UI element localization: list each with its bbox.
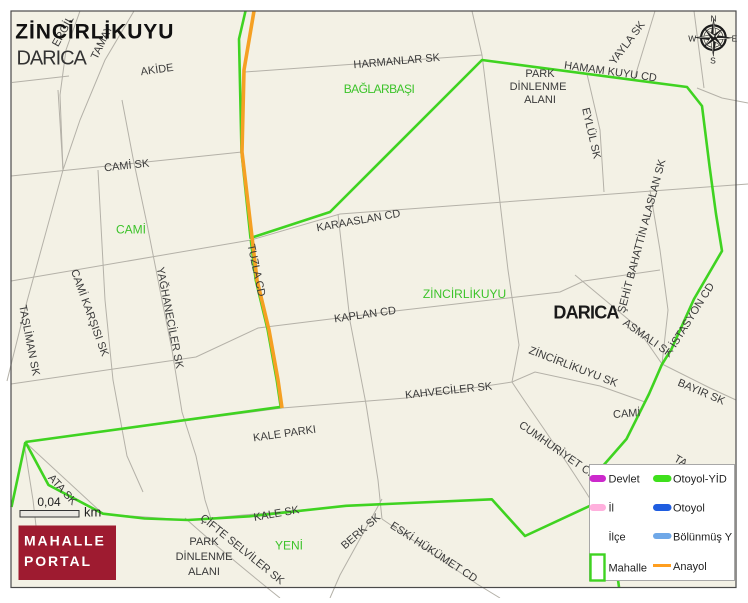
svg-text:Otoyol-YİD: Otoyol-YİD	[673, 473, 727, 486]
svg-text:DİNLENME: DİNLENME	[510, 80, 567, 93]
svg-text:E: E	[732, 34, 738, 44]
svg-text:ZİNCİRLİKUYU: ZİNCİRLİKUYU	[423, 287, 506, 301]
svg-text:PORTAL: PORTAL	[24, 553, 92, 569]
svg-text:DARICA: DARICA	[17, 48, 88, 70]
svg-text:ZİNCİRLİKUYU: ZİNCİRLİKUYU	[15, 20, 174, 43]
svg-text:ALANI: ALANI	[524, 94, 556, 106]
svg-text:MAHALLE: MAHALLE	[24, 533, 106, 549]
svg-text:CAMİ: CAMİ	[613, 406, 641, 421]
svg-text:DİNLENME: DİNLENME	[176, 550, 233, 563]
svg-text:Otoyol: Otoyol	[673, 503, 705, 515]
svg-text:BAĞLARBAŞI: BAĞLARBAŞI	[344, 81, 415, 96]
svg-text:Devlet: Devlet	[609, 474, 640, 486]
svg-text:W: W	[688, 34, 696, 44]
svg-text:DARICA: DARICA	[553, 303, 619, 323]
svg-text:Anayol: Anayol	[673, 561, 707, 573]
svg-text:0,04: 0,04	[37, 495, 61, 509]
svg-text:S: S	[710, 56, 716, 66]
svg-text:N: N	[711, 14, 717, 24]
svg-text:İl: İl	[609, 502, 615, 515]
svg-text:km: km	[84, 505, 101, 520]
svg-text:CAMİ: CAMİ	[116, 223, 146, 237]
svg-text:İlçe: İlçe	[609, 531, 626, 544]
svg-text:Mahalle: Mahalle	[609, 563, 648, 575]
svg-text:PARK: PARK	[525, 68, 555, 80]
svg-text:PARK: PARK	[189, 536, 219, 548]
svg-text:ALANI: ALANI	[188, 566, 220, 578]
svg-text:Bölünmüş Y: Bölünmüş Y	[673, 532, 733, 544]
svg-text:YENİ: YENİ	[275, 539, 303, 553]
